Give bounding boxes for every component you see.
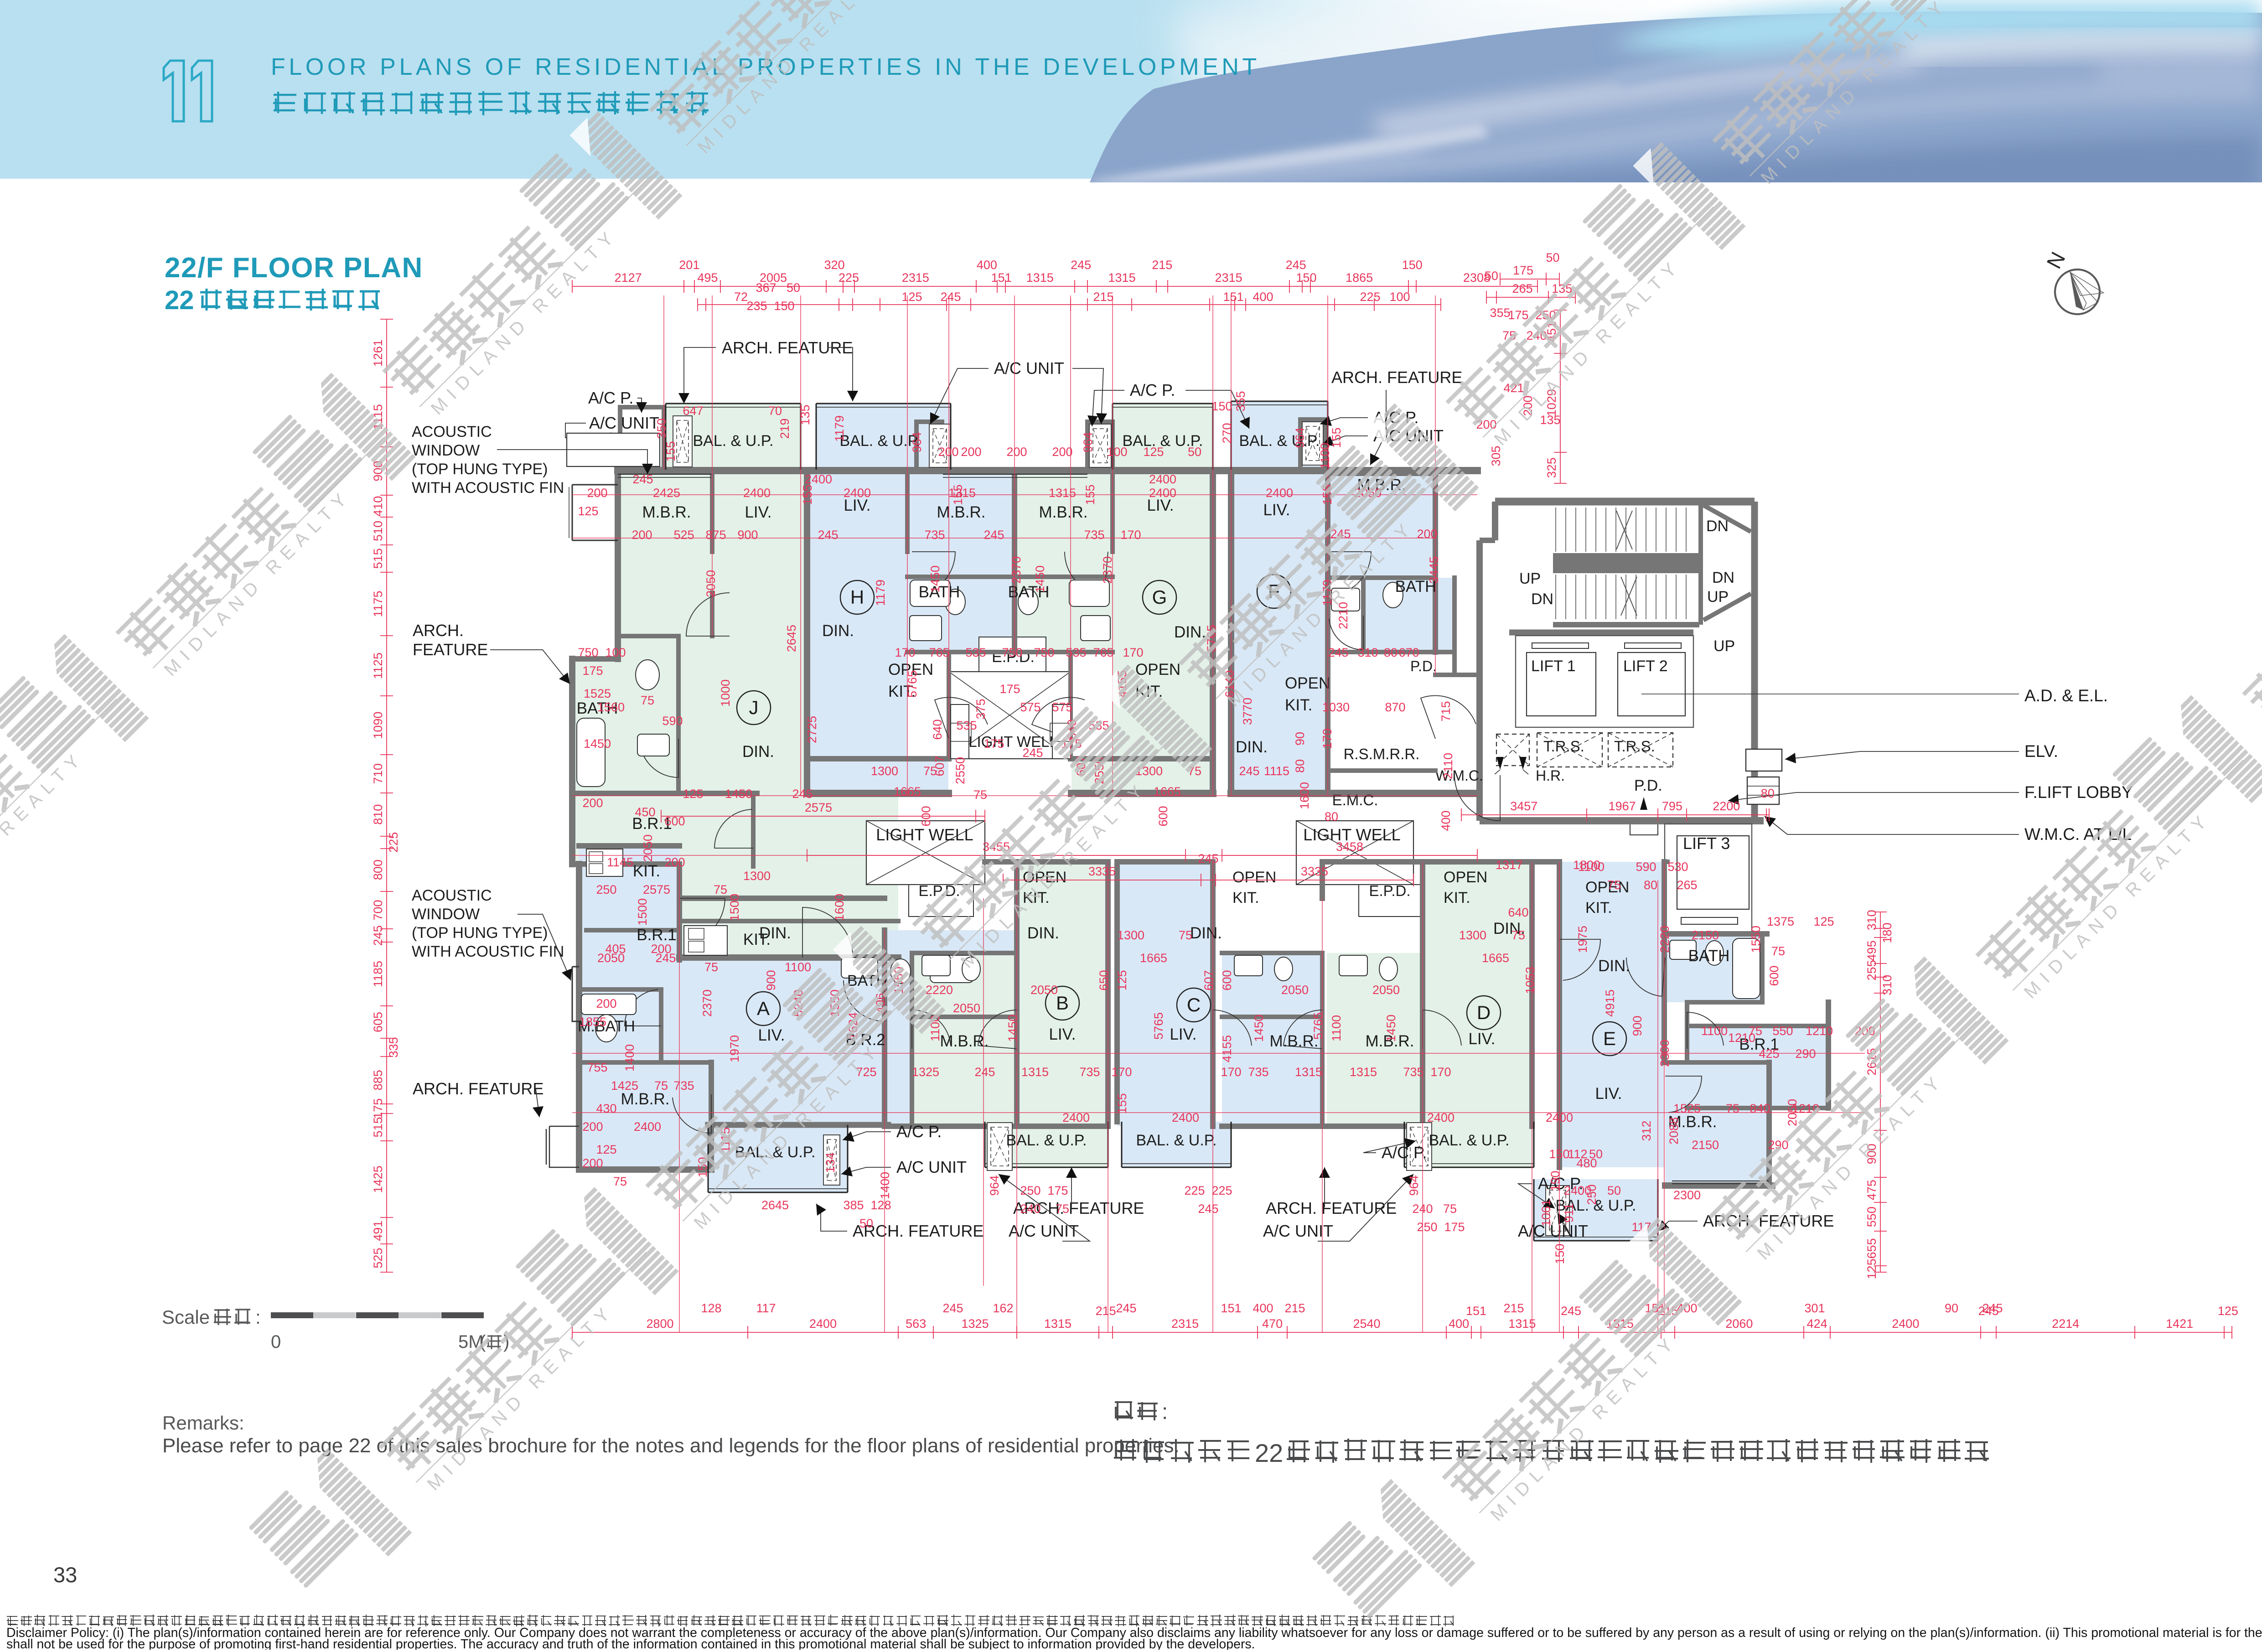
svg-text:2400: 2400 (1149, 486, 1176, 500)
svg-text:FEATURE: FEATURE (413, 640, 488, 659)
svg-text:155: 155 (1115, 1093, 1129, 1113)
svg-text:D: D (1477, 1002, 1491, 1023)
svg-text:155: 155 (951, 484, 965, 505)
svg-text:265: 265 (1677, 878, 1697, 892)
svg-text:80: 80 (1644, 878, 1657, 892)
svg-text:2050: 2050 (704, 570, 718, 597)
svg-text:575: 575 (1020, 700, 1040, 714)
svg-text:1450: 1450 (1384, 1015, 1398, 1042)
svg-text:2150: 2150 (1692, 928, 1719, 942)
svg-text:100: 100 (1107, 445, 1127, 459)
svg-text:1125: 1125 (371, 653, 385, 679)
svg-text:A/C UNIT: A/C UNIT (1518, 1222, 1588, 1240)
svg-text:M.B.R.: M.B.R. (937, 503, 986, 521)
svg-text:750: 750 (578, 646, 598, 659)
svg-text:75: 75 (714, 883, 727, 896)
svg-text:735: 735 (673, 1079, 694, 1093)
svg-text:DIN.: DIN. (822, 622, 854, 640)
svg-text:670: 670 (1398, 646, 1419, 659)
svg-text:151: 151 (1223, 290, 1243, 304)
svg-text:125: 125 (596, 1143, 616, 1156)
svg-text:563: 563 (906, 1317, 926, 1331)
svg-text:375: 375 (974, 699, 988, 719)
svg-text:A/C UNIT: A/C UNIT (589, 414, 659, 432)
svg-text:J: J (749, 697, 759, 718)
svg-text:shall not be used for the purp: shall not be used for the purpose of pro… (6, 1637, 1255, 1650)
svg-text:BAL. & U.P.: BAL. & U.P. (1006, 1132, 1087, 1149)
svg-text:735: 735 (1403, 1065, 1423, 1079)
svg-text:LIFT 1: LIFT 1 (1531, 658, 1576, 675)
svg-text:240: 240 (1412, 1202, 1433, 1216)
svg-text:430: 430 (596, 1102, 616, 1115)
svg-text:162: 162 (993, 1301, 1013, 1315)
svg-text:201: 201 (679, 258, 699, 272)
svg-text:655: 655 (1865, 1238, 1879, 1258)
svg-text:1145: 1145 (607, 855, 633, 869)
svg-text:2725: 2725 (805, 716, 819, 743)
svg-text:Remarks:: Remarks: (162, 1412, 244, 1434)
svg-text:550: 550 (1865, 1207, 1879, 1227)
svg-text:200: 200 (582, 796, 603, 810)
svg-text:900: 900 (737, 528, 758, 542)
svg-text:590: 590 (1636, 860, 1656, 874)
svg-text:1100: 1100 (1330, 1015, 1343, 1041)
svg-text:170: 170 (1430, 1065, 1451, 1079)
svg-text:530: 530 (1667, 860, 1688, 874)
svg-text:250: 250 (1585, 1184, 1599, 1205)
svg-text:DIN.: DIN. (742, 743, 774, 761)
svg-text:600: 600 (919, 806, 933, 826)
svg-text:22: 22 (165, 285, 194, 315)
svg-text:2050: 2050 (641, 834, 655, 862)
svg-text:80: 80 (1293, 759, 1307, 773)
svg-text:810: 810 (371, 804, 385, 825)
svg-text:A/C P.: A/C P. (1382, 1143, 1427, 1162)
svg-text:1030: 1030 (1322, 700, 1350, 714)
svg-text:2540: 2540 (1353, 1317, 1380, 1331)
svg-text:245: 245 (655, 951, 676, 965)
svg-text:LIV.: LIV. (1049, 1025, 1076, 1043)
svg-text:710: 710 (371, 763, 385, 784)
svg-text:235: 235 (746, 299, 767, 313)
svg-text:320: 320 (824, 258, 845, 272)
svg-text:1061: 1061 (1539, 1199, 1553, 1227)
svg-text:1100: 1100 (1578, 860, 1605, 874)
svg-text:765: 765 (929, 646, 949, 659)
svg-text:2400: 2400 (1266, 486, 1293, 500)
svg-text:151: 151 (1221, 1301, 1241, 1315)
svg-text:1300: 1300 (1117, 928, 1144, 942)
svg-text:335: 335 (387, 1037, 400, 1057)
svg-text:255: 255 (1865, 960, 1879, 980)
svg-text:75: 75 (1443, 1202, 1457, 1216)
svg-text:964: 964 (1293, 427, 1307, 448)
svg-text:BAL. & U.P.: BAL. & U.P. (1136, 1132, 1216, 1149)
svg-text:1053: 1053 (1523, 967, 1537, 994)
svg-text:590: 590 (662, 714, 683, 728)
svg-text:170: 170 (1120, 528, 1141, 542)
svg-text:F.LIFT LOBBY: F.LIFT LOBBY (2024, 783, 2133, 802)
svg-text:245: 245 (1198, 1202, 1218, 1216)
svg-text:75: 75 (923, 764, 937, 778)
svg-text:BAL. & U.P.: BAL. & U.P. (1429, 1132, 1509, 1149)
svg-text:290: 290 (1795, 1047, 1816, 1061)
svg-text:DIN.: DIN. (1027, 924, 1059, 942)
svg-text:A/C P.: A/C P. (1130, 381, 1175, 399)
svg-text:155: 155 (801, 484, 814, 505)
svg-text:2425: 2425 (653, 486, 680, 500)
svg-text:525: 525 (673, 528, 694, 542)
svg-text:KIT.: KIT. (1232, 889, 1259, 906)
svg-text:180: 180 (1880, 922, 1894, 943)
svg-text::: : (1162, 1400, 1168, 1424)
svg-text:2400: 2400 (1172, 1111, 1199, 1124)
svg-text:OPEN: OPEN (1444, 869, 1487, 886)
svg-text:125: 125 (901, 290, 922, 304)
svg-text:1450: 1450 (928, 565, 942, 593)
svg-text:50: 50 (1485, 269, 1498, 283)
svg-text:75: 75 (1179, 928, 1192, 942)
svg-text:215: 215 (1284, 1301, 1305, 1315)
svg-text:355: 355 (1490, 306, 1510, 320)
svg-text:1317: 1317 (1496, 858, 1523, 872)
svg-text:1500: 1500 (636, 898, 649, 926)
svg-text:605: 605 (371, 1012, 385, 1032)
svg-text:LIFT 3: LIFT 3 (1683, 834, 1730, 853)
svg-text:DIN.: DIN. (759, 924, 791, 942)
svg-text:P.D.: P.D. (1410, 658, 1437, 674)
svg-text:125: 125 (578, 504, 598, 518)
svg-text:964: 964 (1081, 432, 1095, 452)
svg-text:2300: 2300 (1658, 1040, 1672, 1067)
svg-text:715: 715 (1439, 701, 1453, 721)
svg-text:C: C (1187, 994, 1201, 1015)
svg-text:72: 72 (734, 290, 748, 304)
svg-text:E.M.C.: E.M.C. (1332, 792, 1378, 808)
svg-text:KIT.: KIT. (633, 862, 660, 880)
svg-text:150: 150 (1553, 1243, 1567, 1264)
svg-text:80: 80 (1761, 787, 1775, 800)
svg-text:170: 170 (1320, 728, 1334, 749)
svg-text:175: 175 (582, 664, 603, 678)
svg-text:UP: UP (1519, 570, 1541, 587)
svg-text:2050: 2050 (1372, 983, 1400, 997)
svg-text:265: 265 (1512, 282, 1533, 295)
svg-text:1315: 1315 (1049, 486, 1076, 500)
svg-text:150: 150 (1211, 399, 1232, 413)
svg-text:200: 200 (1052, 445, 1072, 459)
svg-text:305: 305 (1489, 445, 1503, 466)
svg-text:134: 134 (823, 1152, 837, 1173)
svg-text:100: 100 (605, 646, 626, 659)
svg-text:1500: 1500 (728, 894, 741, 921)
svg-text:DIN.: DIN. (1174, 623, 1206, 641)
svg-text:H.R.: H.R. (1536, 767, 1565, 784)
svg-text:151: 151 (1466, 1304, 1486, 1318)
svg-text:A/C P.: A/C P. (588, 388, 633, 407)
svg-text:1375: 1375 (1767, 915, 1794, 928)
svg-text:LIV.: LIV. (745, 503, 771, 521)
svg-text:1400: 1400 (623, 1044, 637, 1072)
svg-text:ARCH.: ARCH. (413, 621, 464, 640)
svg-text:1450: 1450 (584, 737, 611, 751)
svg-text:M.B.R.: M.B.R. (621, 1090, 670, 1108)
svg-text:1261: 1261 (371, 339, 385, 367)
svg-text:575: 575 (1052, 700, 1072, 714)
svg-text:117: 117 (756, 1301, 776, 1315)
svg-text:245: 245 (1286, 258, 1306, 272)
svg-text:310: 310 (1880, 975, 1894, 995)
svg-text:135: 135 (1540, 413, 1560, 427)
svg-text:600: 600 (1156, 806, 1170, 826)
svg-text:425: 425 (1759, 1047, 1779, 1061)
svg-text:535: 535 (956, 719, 977, 732)
svg-text:2050: 2050 (1281, 983, 1309, 997)
svg-text:1210: 1210 (1728, 1031, 1755, 1045)
svg-text:250: 250 (1417, 1220, 1437, 1234)
svg-text:DIN.: DIN. (1236, 738, 1268, 756)
svg-text:885: 885 (371, 1070, 385, 1090)
svg-text:T.R.S.: T.R.S. (1614, 738, 1655, 755)
svg-text:1421: 1421 (2166, 1317, 2193, 1331)
svg-text:50: 50 (787, 281, 800, 295)
svg-text:190: 190 (1548, 1170, 1562, 1191)
svg-text:2400: 2400 (743, 486, 771, 500)
svg-text:75: 75 (704, 960, 718, 974)
svg-text:KIT.: KIT. (1585, 899, 1612, 917)
svg-text:OPEN: OPEN (1135, 661, 1180, 678)
svg-text:E: E (1603, 1028, 1616, 1049)
svg-text:1550: 1550 (1749, 926, 1763, 953)
svg-text:A/C P.: A/C P. (896, 1122, 942, 1141)
svg-text:155: 155 (664, 441, 678, 461)
svg-text:870: 870 (1385, 700, 1405, 714)
svg-text:2150: 2150 (1692, 1138, 1719, 1152)
svg-text:245: 245 (632, 472, 653, 486)
svg-text:R.S.M.R.R.: R.S.M.R.R. (1344, 746, 1420, 762)
svg-text:(TOP HUNG TYPE): (TOP HUNG TYPE) (412, 461, 548, 478)
svg-text:1315: 1315 (1350, 1065, 1377, 1079)
svg-text:410: 410 (371, 496, 385, 517)
svg-text:BATH: BATH (1688, 947, 1730, 965)
svg-text:135: 135 (798, 404, 812, 425)
svg-text:2370: 2370 (700, 989, 714, 1017)
svg-text:400: 400 (1253, 1301, 1273, 1315)
svg-text:525: 525 (371, 1248, 385, 1269)
svg-text:1300: 1300 (871, 764, 898, 778)
svg-text:700: 700 (371, 900, 385, 921)
svg-text:75: 75 (1771, 944, 1785, 958)
svg-text:245: 245 (1198, 852, 1218, 865)
svg-text:LIV.: LIV. (758, 1026, 785, 1044)
svg-text:0: 0 (271, 1332, 281, 1352)
svg-text:245: 245 (974, 1065, 995, 1079)
svg-text:OPEN: OPEN (1285, 674, 1330, 692)
svg-text:1300: 1300 (743, 869, 771, 883)
svg-text:600: 600 (1767, 965, 1781, 986)
svg-text:200: 200 (631, 528, 652, 542)
svg-text:1100: 1100 (1701, 1024, 1728, 1038)
svg-text:765: 765 (1093, 646, 1113, 659)
svg-text:5765: 5765 (906, 670, 919, 698)
svg-text:200: 200 (587, 486, 607, 500)
svg-text:50: 50 (1607, 1184, 1621, 1197)
svg-text:200: 200 (938, 445, 958, 459)
svg-text:795: 795 (1662, 799, 1682, 813)
svg-text:G: G (1152, 586, 1167, 608)
svg-text:240: 240 (1020, 1202, 1040, 1216)
svg-text:2400: 2400 (1892, 1317, 1919, 1331)
svg-text:2214: 2214 (2052, 1317, 2079, 1331)
svg-text:LIV.: LIV. (1468, 1030, 1495, 1048)
svg-text:1115: 1115 (1264, 764, 1289, 778)
svg-text:650: 650 (1097, 970, 1111, 990)
svg-text:510: 510 (371, 521, 385, 541)
svg-text:1100: 1100 (785, 960, 811, 974)
svg-text:1450: 1450 (1252, 1015, 1266, 1042)
svg-text:50: 50 (1589, 1147, 1603, 1161)
svg-text:735: 735 (1084, 528, 1104, 542)
svg-text:2315: 2315 (1215, 271, 1242, 285)
svg-text:647: 647 (683, 404, 703, 418)
svg-text:1600: 1600 (1298, 782, 1311, 809)
svg-text:1450: 1450 (1006, 1015, 1020, 1042)
svg-text:50: 50 (1546, 251, 1560, 264)
svg-text:491: 491 (371, 1221, 385, 1241)
svg-text:215: 215 (1152, 258, 1172, 272)
svg-text:LIFT 2: LIFT 2 (1623, 658, 1668, 675)
svg-text:75: 75 (1726, 1102, 1739, 1115)
svg-text:75: 75 (1607, 878, 1621, 892)
svg-text:50: 50 (1188, 445, 1201, 459)
svg-text:LIV.: LIV. (1595, 1085, 1622, 1103)
svg-text:E.P.D.: E.P.D. (1369, 882, 1410, 899)
svg-text:245: 245 (940, 290, 961, 304)
svg-text:964: 964 (988, 1175, 1001, 1196)
svg-text:2400: 2400 (805, 472, 832, 486)
svg-text:2370: 2370 (1101, 556, 1114, 584)
svg-text:170: 170 (1111, 1065, 1132, 1079)
svg-text:355: 355 (1234, 391, 1247, 411)
svg-text:M.B.R.: M.B.R. (940, 1032, 989, 1050)
svg-text:245: 245 (818, 528, 838, 542)
svg-text:LIV.: LIV. (1263, 501, 1290, 519)
svg-text:(TOP HUNG TYPE): (TOP HUNG TYPE) (412, 924, 548, 942)
svg-text:M.B.R.: M.B.R. (642, 503, 691, 521)
svg-text:1315: 1315 (1021, 1065, 1049, 1079)
svg-text:350: 350 (655, 418, 668, 439)
svg-text:550: 550 (1772, 1024, 1793, 1038)
svg-text:2400: 2400 (1062, 1111, 1090, 1124)
svg-text:3457: 3457 (1510, 799, 1537, 813)
svg-text:Please refer to page 22 of thi: Please refer to page 22 of this sales br… (162, 1434, 1180, 1457)
svg-text:ACOUSTIC: ACOUSTIC (412, 423, 492, 440)
svg-text:150: 150 (1296, 271, 1316, 285)
svg-text:2050: 2050 (953, 1001, 980, 1015)
svg-text:128: 128 (870, 1198, 891, 1212)
svg-text:175: 175 (371, 1098, 385, 1119)
svg-text:2110: 2110 (1441, 753, 1455, 779)
svg-text:175: 175 (1047, 1184, 1068, 1197)
svg-text:4155: 4155 (1220, 1035, 1234, 1062)
svg-text:200: 200 (582, 1156, 603, 1170)
svg-text:535: 535 (1066, 646, 1086, 659)
svg-text:2645: 2645 (785, 625, 798, 652)
svg-text:70: 70 (768, 404, 782, 418)
svg-text:DN: DN (1706, 518, 1729, 535)
svg-text:600: 600 (664, 814, 685, 828)
svg-text:607: 607 (1202, 970, 1216, 990)
svg-text:125: 125 (1115, 970, 1129, 990)
svg-text:125: 125 (1813, 915, 1834, 928)
svg-text:WINDOW: WINDOW (412, 442, 480, 459)
svg-text:5765: 5765 (1311, 1012, 1325, 1040)
svg-text:2050: 2050 (1030, 983, 1058, 997)
svg-text:400: 400 (977, 258, 997, 272)
svg-text:1665: 1665 (1140, 951, 1167, 965)
svg-text:1450: 1450 (725, 787, 752, 801)
svg-text:225: 225 (1360, 290, 1380, 304)
svg-text:DIN.: DIN. (1190, 924, 1222, 942)
svg-text:1179: 1179 (833, 415, 846, 442)
svg-text:640: 640 (931, 719, 944, 740)
svg-text:215: 215 (1096, 1304, 1116, 1318)
svg-text:735: 735 (924, 528, 945, 542)
svg-text:DN: DN (1531, 590, 1553, 608)
svg-text:KIT.: KIT. (1444, 889, 1470, 906)
svg-text:250: 250 (596, 883, 616, 896)
svg-text:450: 450 (635, 805, 655, 819)
svg-text:2050: 2050 (597, 951, 625, 965)
svg-text:2127: 2127 (615, 271, 642, 285)
svg-text:1090: 1090 (371, 712, 385, 739)
svg-text:125: 125 (683, 787, 703, 801)
svg-text:200: 200 (961, 445, 981, 459)
svg-text:100: 100 (1389, 290, 1410, 304)
svg-text:245: 245 (942, 1301, 963, 1315)
svg-text:DN: DN (1712, 569, 1734, 586)
svg-text:175: 175 (999, 682, 1020, 696)
svg-text:2300: 2300 (1673, 1188, 1701, 1202)
svg-text:2088: 2088 (1667, 1117, 1681, 1144)
svg-text:2575: 2575 (643, 883, 670, 896)
svg-text:5765: 5765 (1152, 1012, 1165, 1040)
svg-text:515: 515 (371, 548, 385, 569)
svg-text:424: 424 (1807, 1317, 1827, 1331)
svg-text:200: 200 (596, 997, 616, 1010)
svg-text:2400: 2400 (844, 486, 871, 500)
svg-text:ACOUSTIC: ACOUSTIC (412, 887, 492, 904)
svg-text:LIV.: LIV. (1170, 1025, 1196, 1043)
svg-text:1000: 1000 (719, 679, 732, 707)
svg-text:22/F FLOOR PLAN: 22/F FLOOR PLAN (165, 252, 423, 284)
svg-text:A/C UNIT: A/C UNIT (896, 1158, 967, 1176)
svg-text:WINDOW: WINDOW (412, 906, 480, 923)
svg-text:840: 840 (1750, 1102, 1770, 1115)
svg-text:T.R.S.: T.R.S. (1543, 738, 1584, 755)
svg-text:270: 270 (1220, 423, 1234, 443)
svg-text:2315: 2315 (1171, 1317, 1199, 1331)
svg-text:1665: 1665 (894, 785, 921, 798)
svg-text:170: 170 (1221, 1065, 1241, 1079)
svg-text:BAL. & U.P.: BAL. & U.P. (693, 432, 773, 450)
svg-text:1975: 1975 (1576, 926, 1589, 953)
svg-text:1300: 1300 (1459, 928, 1486, 942)
svg-text:M.B.R.: M.B.R. (1039, 503, 1088, 521)
svg-text:495: 495 (697, 271, 718, 285)
svg-text:75: 75 (973, 788, 987, 802)
svg-text:245: 245 (371, 925, 385, 946)
